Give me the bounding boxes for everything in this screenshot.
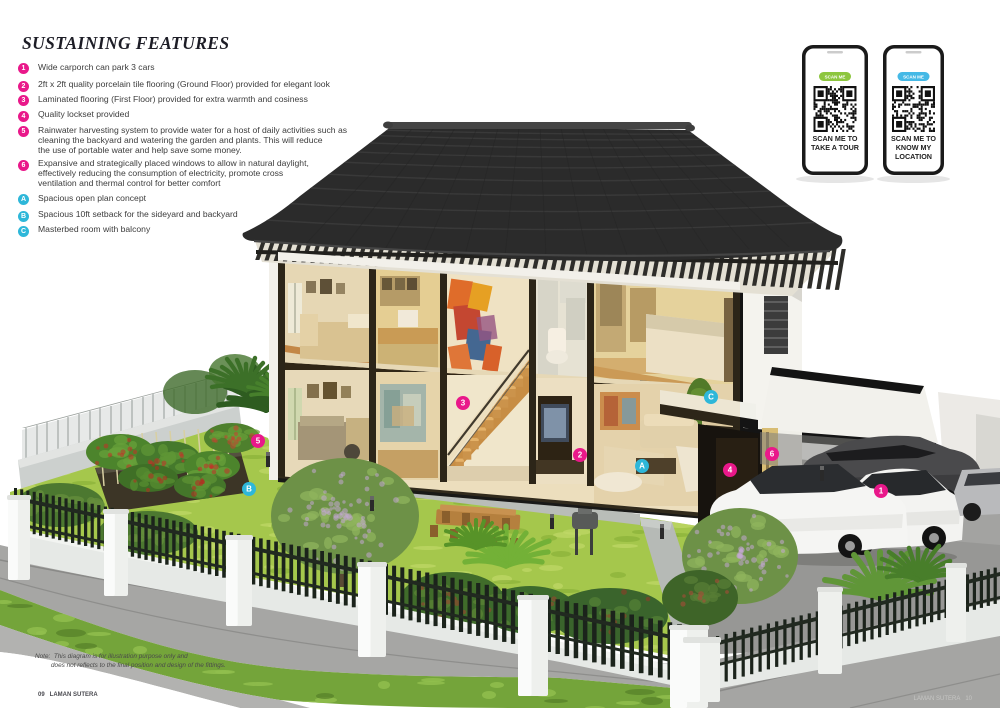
svg-text:SCAN ME TO: SCAN ME TO bbox=[813, 134, 858, 143]
svg-text:09 LAMAN SUTERA: 09 LAMAN SUTERA bbox=[38, 692, 98, 698]
svg-text:KNOW MY: KNOW MY bbox=[896, 143, 932, 152]
svg-text:LAMAN SUTERA 10: LAMAN SUTERA 10 bbox=[914, 696, 973, 702]
svg-text:5: 5 bbox=[256, 437, 261, 446]
svg-text:3: 3 bbox=[461, 399, 466, 408]
svg-text:LOCATION: LOCATION bbox=[895, 152, 932, 161]
svg-text:SCAN ME: SCAN ME bbox=[825, 75, 846, 80]
svg-text:6: 6 bbox=[770, 450, 775, 459]
svg-text:B: B bbox=[246, 485, 252, 494]
svg-text:A: A bbox=[639, 462, 645, 471]
svg-text:SCAN ME TO: SCAN ME TO bbox=[891, 134, 936, 143]
svg-text:1: 1 bbox=[879, 487, 884, 496]
svg-text:SCAN ME: SCAN ME bbox=[903, 75, 924, 80]
svg-text:C: C bbox=[708, 393, 714, 402]
svg-text:2: 2 bbox=[578, 451, 583, 460]
svg-text:TAKE A TOUR: TAKE A TOUR bbox=[811, 143, 860, 152]
svg-text:4: 4 bbox=[728, 466, 733, 475]
